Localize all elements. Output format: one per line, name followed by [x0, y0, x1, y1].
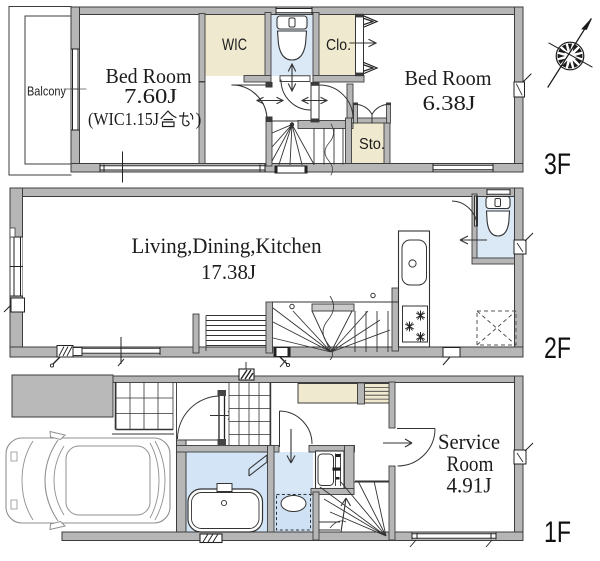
- svg-text:Living,Dining,Kitchen: Living,Dining,Kitchen: [132, 233, 322, 258]
- svg-text:(WIC1.15J: (WIC1.15J: [88, 109, 159, 129]
- svg-text:17.38J: 17.38J: [201, 260, 256, 284]
- svg-text:6.38J: 6.38J: [423, 91, 476, 115]
- svg-text:4.91J: 4.91J: [447, 473, 492, 498]
- svg-text:): ): [196, 109, 202, 129]
- svg-text:Sto.: Sto.: [359, 136, 385, 153]
- svg-text:Bed Room: Bed Room: [405, 66, 492, 90]
- svg-text:7.60J: 7.60J: [124, 84, 177, 108]
- svg-text:WIC: WIC: [222, 36, 247, 54]
- svg-text:2F: 2F: [544, 332, 571, 365]
- svg-text:Balcony: Balcony: [27, 85, 67, 99]
- svg-text:1F: 1F: [544, 516, 571, 549]
- svg-text:3F: 3F: [544, 148, 571, 181]
- svg-text:Clo.: Clo.: [326, 37, 351, 54]
